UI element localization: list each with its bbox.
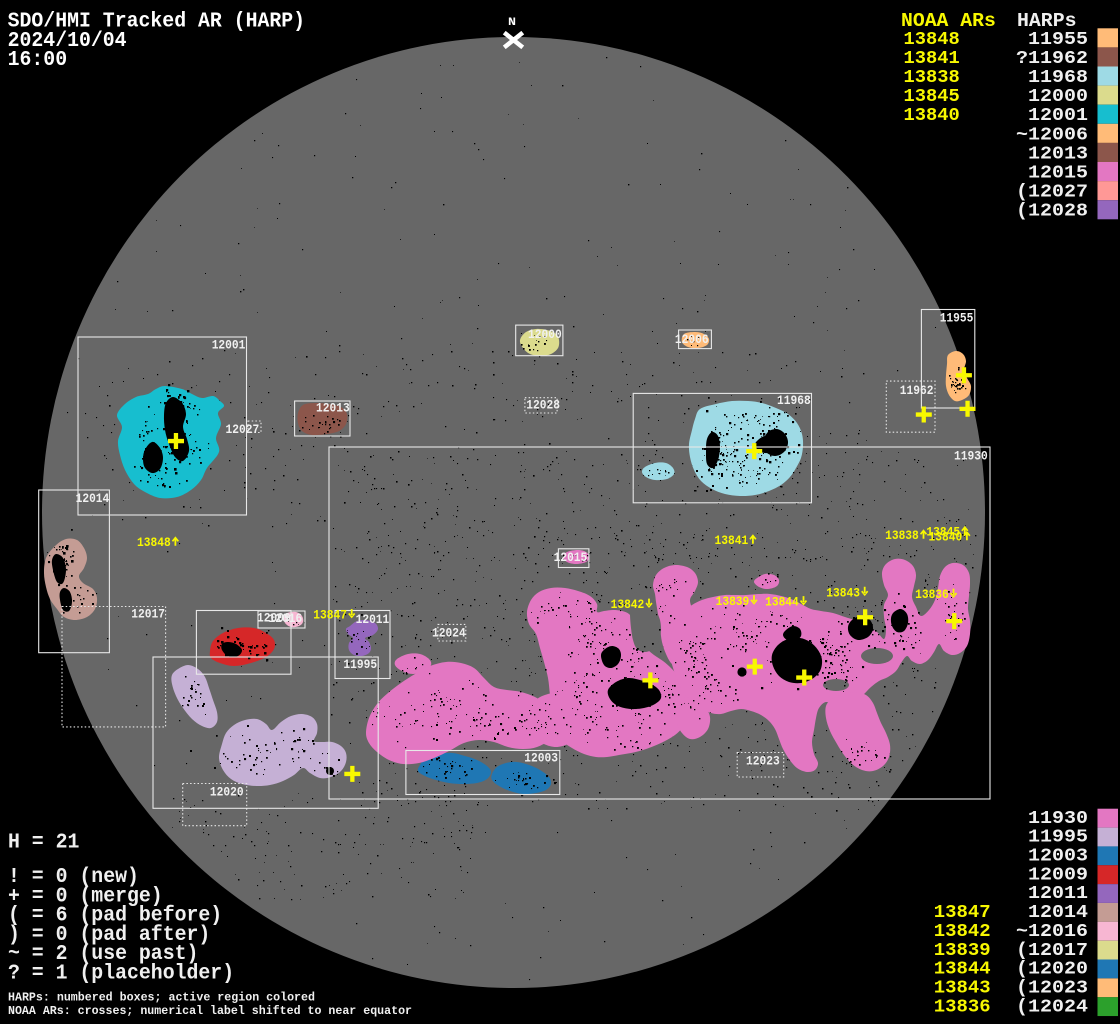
svg-text:13836: 13836 xyxy=(934,996,991,1017)
svg-text:11955: 11955 xyxy=(1028,29,1088,50)
svg-text:13839: 13839 xyxy=(716,594,750,609)
svg-text:12015: 12015 xyxy=(1028,163,1088,184)
svg-text:11995: 11995 xyxy=(343,657,377,672)
svg-text:13848: 13848 xyxy=(904,29,960,50)
svg-text:12015: 12015 xyxy=(554,550,588,565)
svg-text:12001: 12001 xyxy=(1028,105,1088,126)
svg-text:(12017: (12017 xyxy=(1016,940,1088,961)
svg-text:11968: 11968 xyxy=(1028,67,1088,88)
svg-text:12001: 12001 xyxy=(212,338,246,353)
svg-text:13844: 13844 xyxy=(765,595,799,610)
svg-text:13841: 13841 xyxy=(715,533,749,548)
svg-text:13847: 13847 xyxy=(934,902,991,923)
svg-text:11930: 11930 xyxy=(954,449,988,464)
svg-text:(12020: (12020 xyxy=(1016,959,1088,980)
svg-text:13838: 13838 xyxy=(885,528,919,543)
svg-text:(12028: (12028 xyxy=(1016,201,1088,222)
svg-text:11930: 11930 xyxy=(1028,808,1088,829)
svg-text:13839: 13839 xyxy=(934,940,991,961)
svg-text:16:00: 16:00 xyxy=(8,48,68,72)
svg-text:~12016: ~12016 xyxy=(1016,921,1088,942)
svg-text:12011: 12011 xyxy=(1028,883,1088,904)
svg-text:11995: 11995 xyxy=(1028,827,1088,848)
svg-text:13843: 13843 xyxy=(826,585,860,600)
svg-text:12000: 12000 xyxy=(528,327,562,342)
svg-text:N: N xyxy=(508,17,516,29)
svg-text:12014: 12014 xyxy=(1028,902,1088,923)
svg-text:11955: 11955 xyxy=(940,310,974,325)
svg-text:13842: 13842 xyxy=(934,921,991,942)
svg-text:~12006: ~12006 xyxy=(1016,124,1088,145)
svg-text:H = 21: H = 21 xyxy=(8,830,79,854)
svg-text:12028: 12028 xyxy=(526,398,560,413)
svg-text:12009: 12009 xyxy=(1028,864,1088,885)
svg-text:12027: 12027 xyxy=(226,422,260,437)
svg-text:(12027: (12027 xyxy=(1016,182,1088,203)
svg-text:12013: 12013 xyxy=(1028,143,1088,164)
svg-text:13842: 13842 xyxy=(611,597,645,612)
svg-text:HARPs: numbered boxes; active: HARPs: numbered boxes; active region col… xyxy=(8,991,315,1005)
svg-text:13838: 13838 xyxy=(904,67,960,88)
svg-text:12000: 12000 xyxy=(1028,86,1088,107)
svg-text:12003: 12003 xyxy=(524,751,558,766)
svg-text:12023: 12023 xyxy=(746,754,780,769)
svg-text:13841: 13841 xyxy=(904,48,960,69)
svg-text:(12023: (12023 xyxy=(1016,977,1088,998)
svg-text:12020: 12020 xyxy=(210,784,244,799)
svg-text:12003: 12003 xyxy=(1028,846,1088,867)
svg-text:12024: 12024 xyxy=(432,626,466,641)
svg-text:? = 1 (placeholder): ? = 1 (placeholder) xyxy=(8,961,234,985)
svg-text:12013: 12013 xyxy=(316,401,350,416)
svg-text:12014: 12014 xyxy=(76,491,110,506)
svg-text:13843: 13843 xyxy=(934,977,991,998)
svg-text:13836: 13836 xyxy=(915,587,949,602)
svg-text:12017: 12017 xyxy=(131,607,165,622)
svg-text:11962: 11962 xyxy=(900,383,934,398)
svg-text:12006: 12006 xyxy=(675,332,709,347)
svg-text:13848: 13848 xyxy=(137,535,171,550)
svg-text:?11962: ?11962 xyxy=(1016,48,1088,69)
svg-text:NOAA ARs: crosses; numerical l: NOAA ARs: crosses; numerical label shift… xyxy=(8,1004,412,1018)
svg-text:13845: 13845 xyxy=(904,86,960,107)
svg-text:11968: 11968 xyxy=(777,393,811,408)
svg-text:12011: 12011 xyxy=(356,612,390,627)
svg-text:13840: 13840 xyxy=(904,105,960,126)
svg-text:13844: 13844 xyxy=(934,959,991,980)
svg-text:13847: 13847 xyxy=(313,608,347,623)
svg-text:12016: 12016 xyxy=(269,611,303,626)
svg-text:(12024: (12024 xyxy=(1016,996,1088,1017)
svg-text:13845: 13845 xyxy=(926,525,960,540)
